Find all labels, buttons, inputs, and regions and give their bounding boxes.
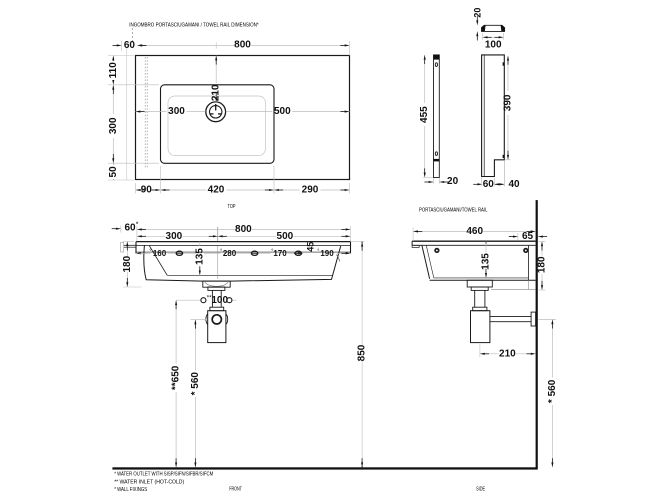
- svg-text:135: 135: [481, 253, 492, 270]
- svg-text:170: 170: [273, 249, 287, 258]
- svg-text:*: *: [136, 222, 139, 229]
- svg-text:50: 50: [108, 166, 119, 178]
- svg-text:TOP: TOP: [228, 204, 236, 210]
- svg-text:PORTASCIUGAMANI/TOWEL RAIL: PORTASCIUGAMANI/TOWEL RAIL: [419, 207, 488, 213]
- svg-text:300: 300: [166, 231, 183, 242]
- svg-text:190: 190: [320, 249, 334, 258]
- svg-text:850: 850: [357, 344, 368, 361]
- svg-text:290: 290: [302, 185, 319, 196]
- svg-text:20: 20: [472, 8, 482, 18]
- svg-text:* 560: * 560: [190, 372, 201, 396]
- svg-text:500: 500: [277, 231, 294, 242]
- svg-text:800: 800: [234, 40, 251, 51]
- svg-text:FRONT: FRONT: [229, 487, 242, 493]
- svg-text:300: 300: [168, 106, 185, 117]
- svg-text:180: 180: [122, 255, 133, 272]
- svg-text:* 560: * 560: [547, 379, 558, 403]
- svg-text:110: 110: [108, 62, 119, 79]
- svg-text:300: 300: [108, 117, 119, 134]
- svg-text:500: 500: [274, 106, 291, 117]
- svg-text:460: 460: [466, 226, 483, 237]
- svg-text:**650: **650: [171, 365, 182, 390]
- svg-text:280: 280: [223, 249, 237, 258]
- svg-text:800: 800: [235, 224, 252, 235]
- svg-text:210: 210: [210, 84, 221, 101]
- svg-text:SIDE: SIDE: [476, 487, 485, 493]
- svg-text:420: 420: [208, 185, 225, 196]
- svg-text:40: 40: [508, 179, 520, 190]
- svg-text:* WATER OUTLET WITH SISP/SIFN/: * WATER OUTLET WITH SISP/SIFN/SIFBR/SIFC…: [114, 472, 213, 478]
- svg-text:160: 160: [153, 249, 167, 258]
- svg-text:°: °: [271, 248, 273, 254]
- svg-text:60: 60: [483, 179, 495, 190]
- svg-text:°: °: [220, 248, 222, 254]
- svg-text:** WATER INLET (HOT-COLD): ** WATER INLET (HOT-COLD): [114, 479, 184, 485]
- svg-text:180: 180: [537, 256, 548, 273]
- svg-text:135: 135: [194, 248, 205, 265]
- svg-text:210: 210: [499, 348, 516, 359]
- svg-text:INGOMBRO PORTASCIUGAMANI / TOW: INGOMBRO PORTASCIUGAMANI / TOWEL RAIL DI…: [129, 23, 259, 29]
- svg-text:45: 45: [305, 242, 315, 252]
- svg-text:°: °: [149, 248, 151, 254]
- svg-text:* WALL FIXINGS: * WALL FIXINGS: [114, 487, 147, 493]
- svg-text:65: 65: [522, 231, 534, 242]
- svg-text:90: 90: [141, 185, 153, 196]
- svg-text:100: 100: [485, 39, 502, 50]
- svg-text:455: 455: [419, 106, 430, 123]
- svg-text:60: 60: [124, 222, 136, 233]
- svg-text:100: 100: [211, 295, 228, 306]
- svg-text:60: 60: [124, 40, 136, 51]
- svg-text:°: °: [317, 248, 319, 254]
- svg-text:20: 20: [447, 176, 459, 187]
- svg-text:390: 390: [503, 94, 514, 111]
